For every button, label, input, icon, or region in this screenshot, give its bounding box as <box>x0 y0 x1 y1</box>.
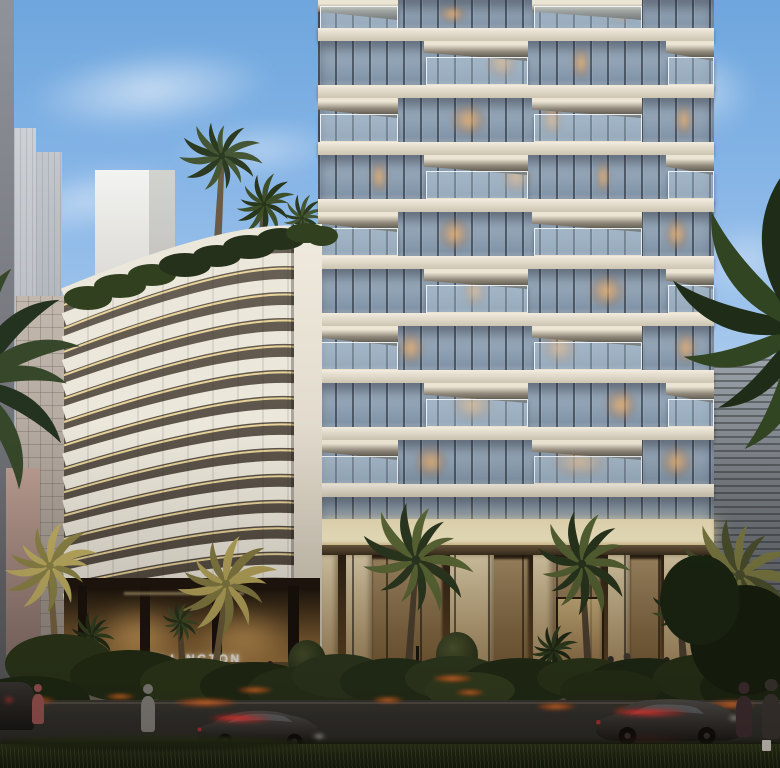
person-head <box>143 684 153 694</box>
person-head <box>34 684 42 692</box>
pedestrian <box>736 696 752 737</box>
architectural-rendering-scene: ELLINGTON <box>0 0 780 768</box>
pedestrian <box>32 694 43 724</box>
person-head <box>738 682 749 693</box>
shopping-bag <box>762 740 771 751</box>
street-pedestrians <box>0 0 780 768</box>
person-head <box>765 679 778 692</box>
pedestrian <box>762 694 779 739</box>
pedestrian <box>141 696 155 732</box>
